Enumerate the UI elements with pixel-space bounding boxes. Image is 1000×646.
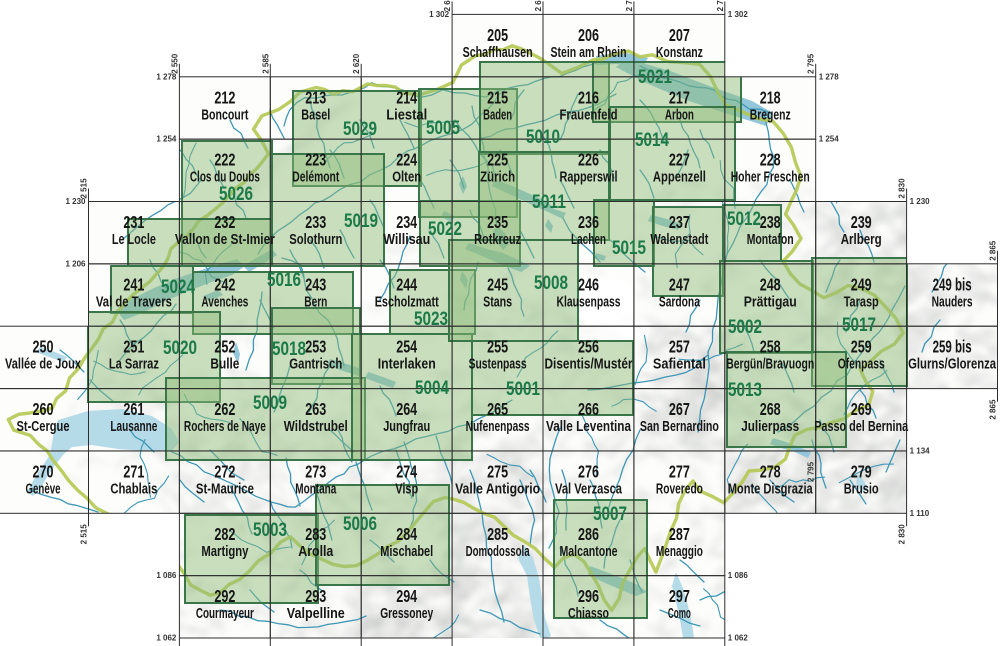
- svg-text:269: 269: [851, 399, 872, 419]
- svg-text:1 254: 1 254: [819, 135, 840, 144]
- svg-text:1 086: 1 086: [728, 571, 749, 580]
- svg-text:287: 287: [669, 524, 690, 544]
- svg-text:250: 250: [33, 337, 54, 357]
- svg-text:270: 270: [33, 461, 54, 481]
- svg-text:252: 252: [214, 337, 235, 357]
- svg-text:Roveredo: Roveredo: [656, 480, 703, 497]
- svg-text:Como: Como: [668, 605, 691, 622]
- svg-text:5015: 5015: [612, 237, 646, 259]
- svg-text:5004: 5004: [415, 377, 449, 399]
- svg-text:Lausanne: Lausanne: [110, 418, 157, 435]
- svg-text:Avenches: Avenches: [201, 293, 248, 310]
- svg-text:5011: 5011: [532, 191, 566, 213]
- svg-text:5026: 5026: [219, 183, 253, 205]
- svg-text:St-Maurice: St-Maurice: [196, 480, 254, 497]
- svg-text:Chiasso: Chiasso: [568, 605, 609, 622]
- svg-text:Wildstrubel: Wildstrubel: [284, 418, 348, 435]
- svg-text:2 725: 2 725: [625, 0, 634, 11]
- svg-text:242: 242: [214, 274, 235, 294]
- svg-text:256: 256: [578, 337, 599, 357]
- svg-text:5009: 5009: [253, 392, 287, 414]
- svg-text:207: 207: [669, 25, 690, 45]
- svg-text:1 134: 1 134: [910, 446, 931, 455]
- svg-text:Interlaken: Interlaken: [378, 356, 436, 373]
- svg-text:Frauenfeld: Frauenfeld: [560, 106, 618, 123]
- svg-text:1 278: 1 278: [156, 72, 177, 81]
- svg-text:253: 253: [305, 337, 326, 357]
- svg-text:Montana: Montana: [295, 480, 336, 497]
- svg-text:Tarasp: Tarasp: [844, 293, 879, 310]
- svg-text:228: 228: [760, 150, 781, 170]
- svg-text:Basel: Basel: [301, 106, 330, 123]
- svg-text:248: 248: [760, 274, 781, 294]
- svg-text:282: 282: [214, 524, 235, 544]
- svg-text:239: 239: [851, 212, 872, 232]
- svg-text:2 830: 2 830: [898, 524, 907, 545]
- svg-text:Glurns/Glorenza: Glurns/Glorenza: [908, 356, 996, 373]
- svg-text:213: 213: [305, 87, 326, 107]
- svg-text:259 bis: 259 bis: [933, 337, 972, 357]
- svg-text:5007: 5007: [593, 503, 627, 525]
- svg-text:5017: 5017: [842, 314, 876, 336]
- svg-text:Bulle: Bulle: [210, 356, 239, 373]
- svg-text:5006: 5006: [343, 513, 377, 535]
- svg-text:292: 292: [214, 586, 235, 606]
- svg-text:5022: 5022: [428, 218, 462, 240]
- svg-text:Julierpass: Julierpass: [741, 418, 799, 435]
- svg-text:1 230: 1 230: [910, 197, 931, 206]
- svg-text:Valpelline: Valpelline: [287, 605, 345, 622]
- svg-text:Visp: Visp: [395, 480, 418, 497]
- svg-text:Rotkreuz: Rotkreuz: [474, 231, 521, 248]
- svg-text:1 062: 1 062: [156, 634, 177, 643]
- svg-text:Arolla: Arolla: [298, 543, 333, 560]
- svg-text:Bregenz: Bregenz: [750, 106, 791, 123]
- svg-text:Disentis/Mustér: Disentis/Mustér: [545, 356, 633, 373]
- svg-text:Menaggio: Menaggio: [656, 543, 703, 560]
- svg-text:235: 235: [487, 212, 508, 232]
- svg-text:Bern: Bern: [304, 293, 327, 310]
- svg-text:274: 274: [396, 461, 417, 481]
- svg-text:255: 255: [487, 337, 508, 357]
- svg-text:5010: 5010: [526, 126, 560, 148]
- svg-text:Passo del Bernina: Passo del Bernina: [814, 418, 908, 435]
- svg-text:254: 254: [396, 337, 417, 357]
- svg-text:238: 238: [760, 212, 781, 232]
- svg-text:2 865: 2 865: [989, 240, 998, 261]
- svg-text:1 230: 1 230: [65, 197, 86, 206]
- svg-text:Domodossola: Domodossola: [466, 543, 530, 560]
- svg-text:5029: 5029: [343, 118, 377, 140]
- svg-text:249 bis: 249 bis: [933, 274, 972, 294]
- svg-text:2 795: 2 795: [807, 53, 816, 74]
- svg-text:218: 218: [760, 87, 781, 107]
- svg-text:5008: 5008: [534, 272, 568, 294]
- svg-text:266: 266: [578, 399, 599, 419]
- svg-text:259: 259: [851, 337, 872, 357]
- svg-text:Nufenenpass: Nufenenpass: [466, 418, 530, 435]
- svg-text:2 550: 2 550: [170, 53, 179, 74]
- svg-text:260: 260: [33, 399, 54, 419]
- svg-text:San Bernardino: San Bernardino: [640, 418, 719, 435]
- svg-text:5024: 5024: [161, 276, 195, 298]
- svg-text:5012: 5012: [727, 208, 761, 230]
- svg-text:286: 286: [578, 524, 599, 544]
- svg-text:Appenzell: Appenzell: [653, 169, 706, 186]
- svg-text:2 585: 2 585: [261, 53, 270, 74]
- svg-text:La Sarraz: La Sarraz: [109, 356, 159, 373]
- svg-text:Montafon: Montafon: [747, 231, 794, 248]
- svg-text:216: 216: [578, 87, 599, 107]
- svg-text:Bergün/Bravuogn: Bergün/Bravuogn: [726, 356, 814, 373]
- svg-text:Sardona: Sardona: [659, 293, 700, 310]
- svg-text:Jungfrau: Jungfrau: [383, 418, 430, 435]
- svg-text:Stans: Stans: [483, 293, 512, 310]
- svg-text:Chablais: Chablais: [110, 480, 157, 497]
- svg-text:222: 222: [214, 150, 235, 170]
- svg-text:1 302: 1 302: [728, 10, 749, 19]
- svg-text:293: 293: [305, 586, 326, 606]
- svg-text:5013: 5013: [728, 379, 762, 401]
- svg-text:St-Cergue: St-Cergue: [17, 418, 70, 435]
- svg-text:Liestal: Liestal: [386, 106, 427, 123]
- svg-text:5021: 5021: [638, 66, 672, 88]
- svg-text:Nauders: Nauders: [932, 293, 973, 310]
- svg-text:5002: 5002: [728, 316, 762, 338]
- svg-text:2 515: 2 515: [80, 178, 89, 199]
- svg-text:265: 265: [487, 399, 508, 419]
- svg-text:5003: 5003: [253, 519, 287, 541]
- svg-text:264: 264: [396, 399, 417, 419]
- svg-text:268: 268: [760, 399, 781, 419]
- svg-text:237: 237: [669, 212, 690, 232]
- svg-text:Gressoney: Gressoney: [380, 605, 433, 622]
- svg-text:5005: 5005: [426, 117, 460, 139]
- svg-text:241: 241: [123, 274, 144, 294]
- svg-text:205: 205: [487, 25, 508, 45]
- svg-text:283: 283: [305, 524, 326, 544]
- svg-text:244: 244: [396, 274, 417, 294]
- svg-text:Prättigau: Prättigau: [744, 293, 797, 310]
- svg-text:251: 251: [123, 337, 144, 357]
- svg-text:1 110: 1 110: [910, 509, 930, 518]
- svg-text:Zürich: Zürich: [480, 169, 515, 186]
- svg-text:2 830: 2 830: [898, 178, 907, 199]
- svg-text:232: 232: [214, 212, 235, 232]
- svg-text:285: 285: [487, 524, 508, 544]
- svg-text:273: 273: [305, 461, 326, 481]
- svg-text:Willisau: Willisau: [383, 231, 430, 248]
- svg-text:1 086: 1 086: [156, 571, 177, 580]
- svg-text:5023: 5023: [414, 308, 448, 330]
- svg-text:2 690: 2 690: [534, 0, 543, 11]
- svg-text:2 620: 2 620: [352, 53, 361, 74]
- svg-text:262: 262: [214, 399, 235, 419]
- svg-text:1 254: 1 254: [156, 135, 177, 144]
- svg-text:Ofenpass: Ofenpass: [838, 356, 885, 373]
- svg-text:245: 245: [487, 274, 508, 294]
- svg-text:277: 277: [669, 461, 690, 481]
- svg-text:1 302: 1 302: [429, 10, 450, 19]
- svg-text:263: 263: [305, 399, 326, 419]
- svg-text:258: 258: [760, 337, 781, 357]
- svg-text:275: 275: [487, 461, 508, 481]
- svg-text:279: 279: [851, 461, 872, 481]
- svg-text:297: 297: [669, 586, 690, 606]
- svg-text:5014: 5014: [635, 129, 669, 151]
- svg-text:Schaffhausen: Schaffhausen: [463, 44, 533, 61]
- svg-text:Genève: Genève: [26, 480, 61, 497]
- svg-text:284: 284: [396, 524, 417, 544]
- svg-text:278: 278: [760, 461, 781, 481]
- svg-text:Arlberg: Arlberg: [841, 231, 882, 248]
- svg-text:Mischabel: Mischabel: [380, 543, 433, 560]
- svg-text:Valle Antigorio: Valle Antigorio: [455, 480, 540, 497]
- svg-text:Klausenpass: Klausenpass: [557, 293, 621, 310]
- svg-text:249: 249: [851, 274, 872, 294]
- svg-text:271: 271: [123, 461, 144, 481]
- svg-text:Vallée de Joux: Vallée de Joux: [5, 356, 81, 373]
- svg-text:5018: 5018: [272, 338, 306, 360]
- svg-text:Rochers de Naye: Rochers de Naye: [184, 418, 266, 435]
- svg-text:Courmayeur: Courmayeur: [196, 605, 254, 622]
- svg-text:Rapperswil: Rapperswil: [560, 169, 618, 186]
- svg-text:Safiental: Safiental: [653, 356, 706, 373]
- svg-text:2 865: 2 865: [989, 399, 998, 420]
- svg-text:226: 226: [578, 150, 599, 170]
- svg-text:296: 296: [578, 586, 599, 606]
- svg-text:225: 225: [487, 150, 508, 170]
- svg-text:233: 233: [305, 212, 326, 232]
- svg-text:Sustenpass: Sustenpass: [469, 356, 527, 373]
- svg-text:Delémont: Delémont: [292, 169, 339, 186]
- svg-text:1 278: 1 278: [819, 72, 840, 81]
- svg-text:Monte Disgrazia: Monte Disgrazia: [728, 480, 813, 497]
- svg-text:215: 215: [487, 87, 508, 107]
- svg-text:257: 257: [669, 337, 690, 357]
- svg-text:Olten: Olten: [392, 169, 421, 186]
- svg-text:5019: 5019: [344, 210, 378, 232]
- svg-text:Boncourt: Boncourt: [201, 106, 248, 123]
- svg-text:276: 276: [578, 461, 599, 481]
- svg-text:2 760: 2 760: [716, 0, 725, 11]
- svg-text:5016: 5016: [267, 269, 301, 291]
- svg-text:5001: 5001: [506, 378, 540, 400]
- svg-text:1 206: 1 206: [65, 259, 86, 268]
- svg-text:Brusio: Brusio: [844, 480, 879, 497]
- svg-text:206: 206: [578, 25, 599, 45]
- svg-text:Vallon de St-Imier: Vallon de St-Imier: [175, 231, 275, 248]
- svg-text:243: 243: [305, 274, 326, 294]
- svg-text:267: 267: [669, 399, 690, 419]
- svg-text:224: 224: [396, 150, 417, 170]
- svg-text:227: 227: [669, 150, 690, 170]
- svg-text:1 062: 1 062: [728, 634, 749, 643]
- svg-text:234: 234: [396, 212, 417, 232]
- svg-text:2 515: 2 515: [80, 524, 89, 545]
- svg-text:223: 223: [305, 150, 326, 170]
- svg-text:Stein am Rhein: Stein am Rhein: [551, 44, 627, 61]
- svg-text:Malcantone: Malcantone: [560, 543, 618, 560]
- svg-text:214: 214: [396, 87, 417, 107]
- svg-text:Val Verzasca: Val Verzasca: [555, 480, 622, 497]
- svg-text:Walenstadt: Walenstadt: [650, 231, 708, 248]
- svg-text:272: 272: [214, 461, 235, 481]
- svg-text:Lachen: Lachen: [571, 231, 606, 248]
- svg-text:261: 261: [123, 399, 144, 419]
- svg-text:5020: 5020: [163, 337, 197, 359]
- svg-text:Solothurn: Solothurn: [289, 231, 342, 248]
- svg-text:Hoher Freschen: Hoher Freschen: [731, 169, 810, 186]
- svg-text:2 795: 2 795: [807, 461, 816, 482]
- svg-text:Baden: Baden: [483, 106, 512, 123]
- svg-text:Le Locle: Le Locle: [112, 231, 156, 248]
- svg-text:Konstanz: Konstanz: [656, 44, 703, 61]
- svg-text:231: 231: [123, 212, 144, 232]
- svg-text:247: 247: [669, 274, 690, 294]
- svg-text:236: 236: [578, 212, 599, 232]
- svg-text:294: 294: [396, 586, 417, 606]
- svg-text:Arbon: Arbon: [665, 106, 694, 123]
- svg-text:Valle Leventina: Valle Leventina: [546, 418, 631, 435]
- svg-text:Martigny: Martigny: [201, 543, 248, 560]
- svg-text:212: 212: [214, 87, 235, 107]
- svg-text:217: 217: [669, 87, 690, 107]
- svg-text:246: 246: [578, 274, 599, 294]
